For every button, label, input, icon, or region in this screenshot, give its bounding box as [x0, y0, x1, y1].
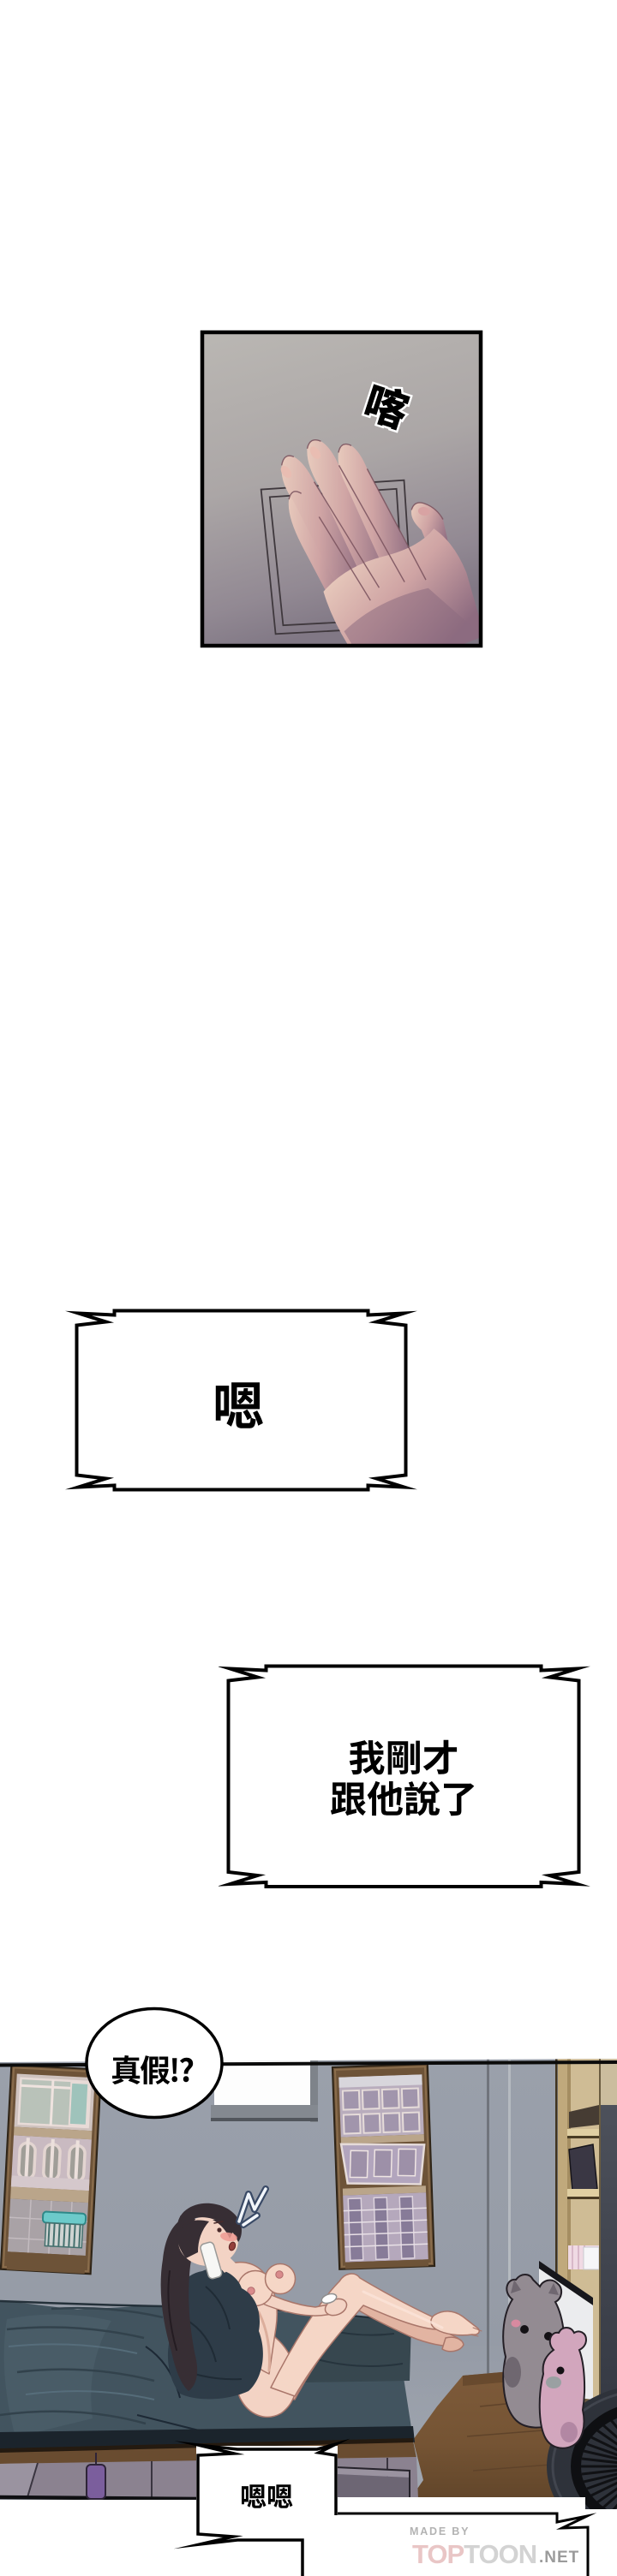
svg-text:.NET: .NET [539, 2549, 579, 2567]
svg-text:TOPTOON: TOPTOON [412, 2539, 536, 2569]
svg-text:MADE BY: MADE BY [410, 2525, 470, 2537]
